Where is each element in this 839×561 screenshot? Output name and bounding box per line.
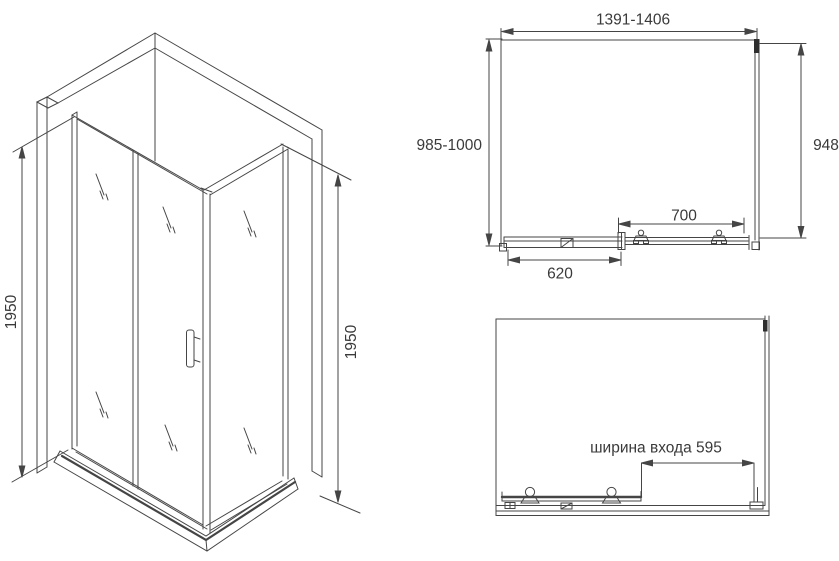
drawing-canvas: 1950 1950 (0, 0, 839, 561)
dimension-entrance-width: ширина входа 595 (590, 440, 754, 497)
overall-depth-label: 985-1000 (416, 137, 482, 154)
technical-drawing-sheet: 1950 1950 (0, 0, 839, 561)
door-section-label: 700 (671, 208, 697, 225)
overall-width-label: 1391-1406 (596, 12, 670, 29)
plan-fixed-panel-track (500, 233, 626, 252)
plan-view: 1391-1406 985-1000 948 700 (416, 12, 838, 283)
plan-door-track (625, 230, 760, 249)
side-depth-label: 948 (813, 137, 839, 154)
front-view: ширина входа 595 (496, 316, 769, 516)
room-walls (37, 33, 322, 477)
height-left-label: 1950 (3, 294, 20, 329)
dimension-fixed-section: 620 (508, 250, 621, 283)
front-outline (496, 316, 769, 516)
height-right-label: 1950 (343, 324, 360, 359)
front-corner-bracket (750, 488, 763, 510)
dimension-height-right: 1950 (287, 147, 360, 513)
glass-sparkles (96, 174, 256, 454)
wall-profile-end (754, 39, 760, 53)
isometric-view: 1950 1950 (3, 33, 360, 551)
shower-tray (54, 451, 298, 551)
dimension-side-depth: 948 (760, 44, 839, 239)
wall-profile-top (763, 320, 768, 332)
glass-enclosure-frame (72, 112, 289, 533)
plan-outline (501, 39, 760, 250)
dimension-door-section: 700 (619, 208, 745, 234)
dimension-overall-width: 1391-1406 (501, 12, 757, 41)
door-handle (187, 330, 201, 367)
dimension-overall-depth: 985-1000 (416, 39, 502, 246)
entrance-width-label: ширина входа 595 (590, 440, 722, 457)
dimension-height-left: 1950 (3, 117, 74, 482)
fixed-section-label: 620 (547, 266, 573, 283)
